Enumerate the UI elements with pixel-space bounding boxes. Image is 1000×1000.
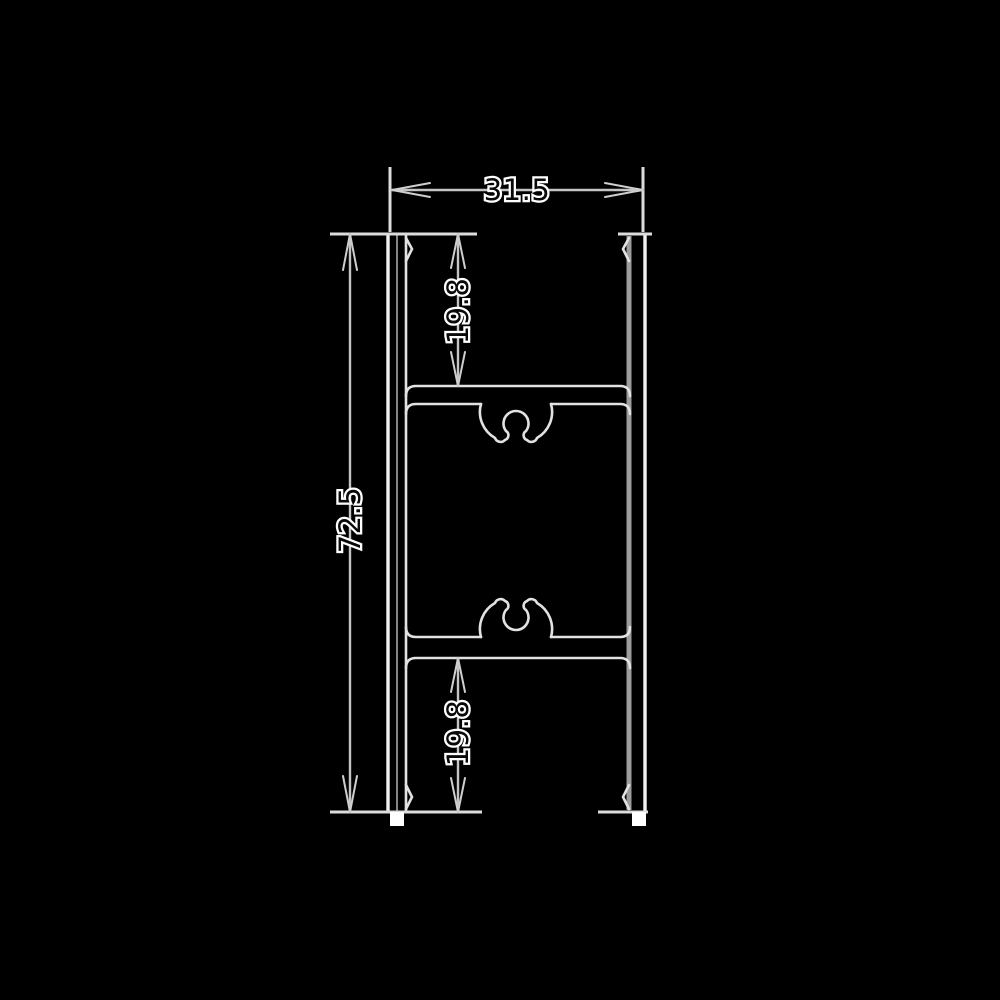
dim-overall-height: 72.5	[333, 234, 367, 812]
dim-bottom-channel-depth: 19.8	[441, 658, 475, 812]
dim-top-channel-depth: 19.8	[441, 234, 475, 386]
left-foot	[390, 812, 404, 826]
dim-label-overall-height: 72.5	[333, 487, 367, 554]
middle-chamber-bottom	[406, 627, 630, 637]
corner-hooks	[406, 238, 629, 809]
screw-boss-top	[480, 404, 552, 442]
dim-label-bottom-channel: 19.8	[441, 700, 475, 767]
right-foot	[632, 812, 646, 826]
dim-overall-width: 31.5	[390, 167, 643, 232]
right-wall	[629, 234, 645, 812]
top-channel-floor	[406, 386, 630, 396]
bottom-channel-ceiling	[406, 658, 630, 668]
left-wall	[388, 234, 406, 812]
profile-outline	[330, 234, 652, 826]
middle-chamber-top	[406, 404, 630, 414]
profile-cross-section-drawing: 31.5 72.5 19.8 19.8	[0, 0, 1000, 1000]
drawing-canvas: 31.5 72.5 19.8 19.8	[0, 0, 1000, 1000]
dim-label-top-channel: 19.8	[441, 278, 475, 345]
screw-boss-bottom	[480, 599, 552, 637]
dim-label-overall-width: 31.5	[484, 173, 551, 207]
